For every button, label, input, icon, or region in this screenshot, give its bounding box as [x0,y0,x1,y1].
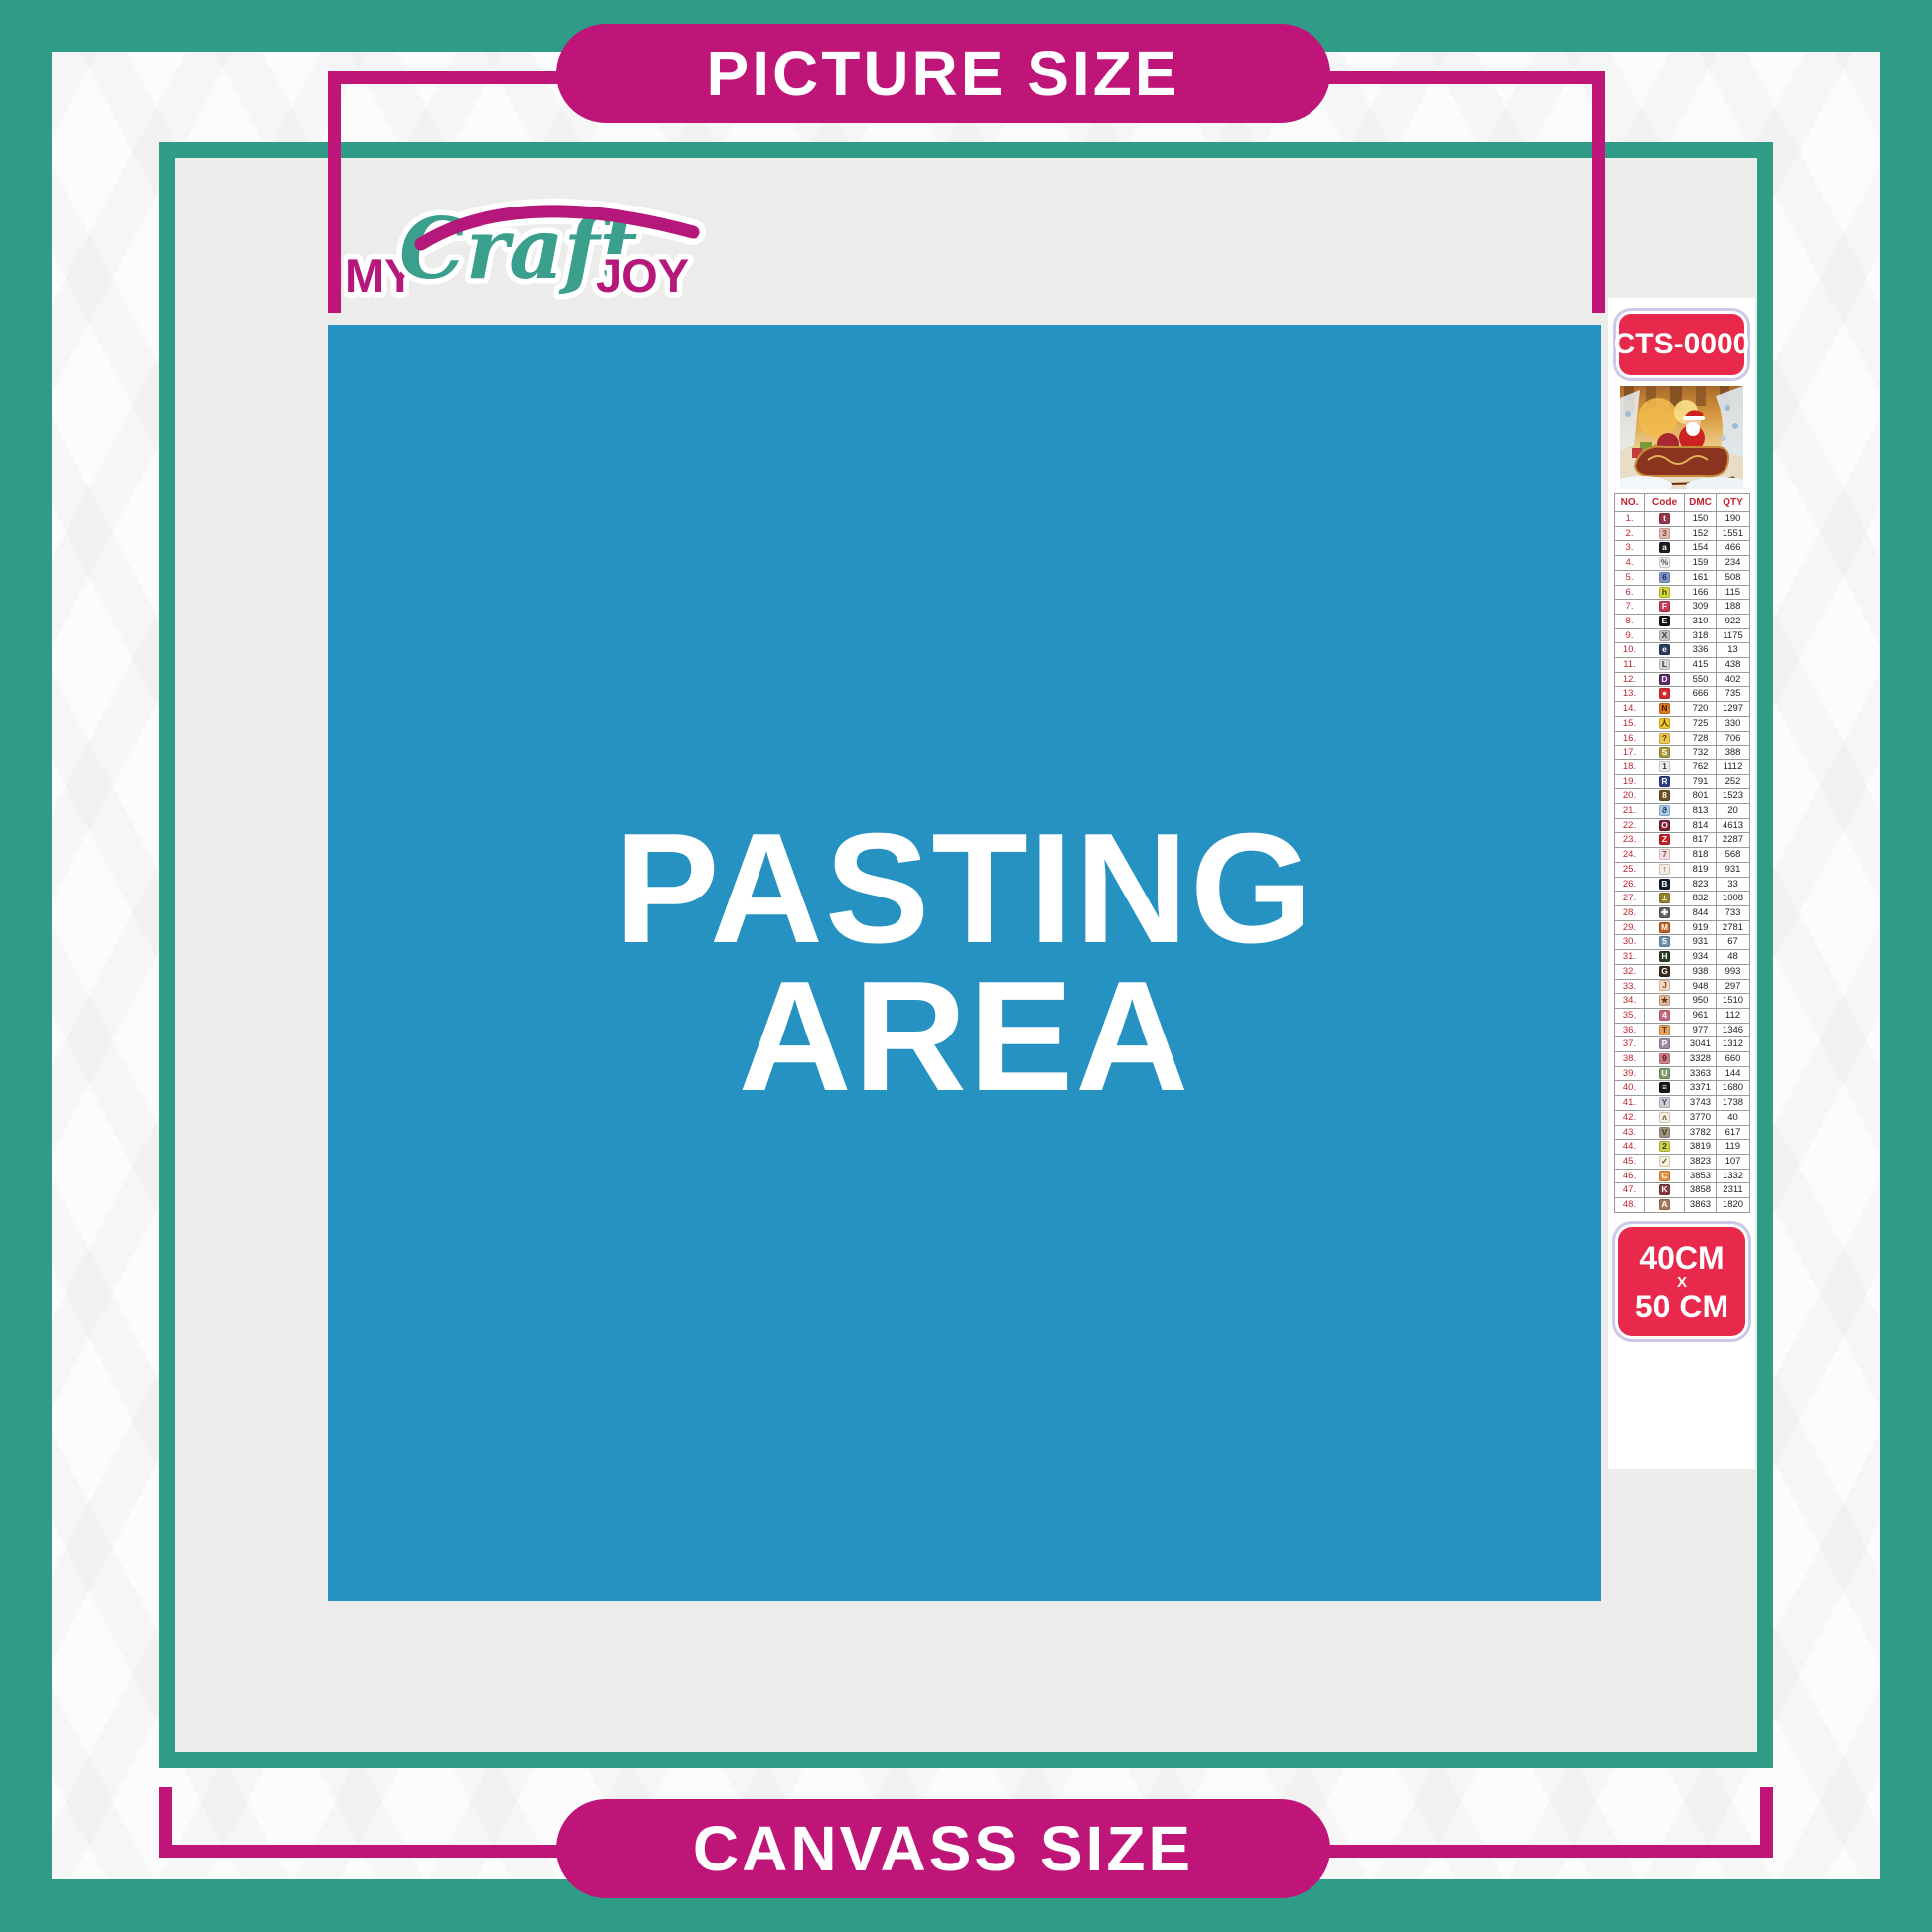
symbol-chip: Y [1659,1097,1670,1108]
code-cell: 8 [1645,789,1685,804]
symbol-chip: 1 [1659,761,1670,772]
dmc-value: 950 [1685,994,1717,1009]
symbol-chip: 2 [1659,1141,1670,1152]
dmc-value: 3743 [1685,1096,1717,1111]
dmc-value: 813 [1685,804,1717,819]
symbol-chip: T [1659,1025,1670,1035]
symbol-chip: ✓ [1659,1156,1670,1167]
dmc-value: 832 [1685,892,1717,906]
table-row: 10.e33613 [1615,643,1750,658]
dmc-value: 977 [1685,1023,1717,1037]
symbol-chip: 人 [1659,718,1670,729]
table-row: 44.23819119 [1615,1140,1750,1155]
dmc-value: 415 [1685,658,1717,673]
code-cell: ✤ [1645,905,1685,920]
row-number: 10. [1615,643,1645,658]
table-row: 4.%159234 [1615,556,1750,571]
qty-value: 1510 [1717,994,1750,1009]
table-row: 41.Y37431738 [1615,1096,1750,1111]
code-cell: 4 [1645,1008,1685,1023]
code-cell: ● [1645,687,1685,702]
product-size-graphic: PICTURE SIZE CANVASS SIZE MY Craft JOY P… [0,0,1932,1932]
dmc-value: 801 [1685,789,1717,804]
qty-value: 4613 [1717,818,1750,833]
row-number: 16. [1615,731,1645,746]
qty-value: 40 [1717,1110,1750,1125]
code-cell: H [1645,950,1685,965]
symbol-chip: X [1659,630,1670,641]
dmc-value: 817 [1685,833,1717,848]
qty-value: 1008 [1717,892,1750,906]
dmc-value: 814 [1685,818,1717,833]
symbol-chip: ± [1659,893,1670,903]
code-cell: 7 [1645,848,1685,863]
qty-value: 2287 [1717,833,1750,848]
table-row: 26.B82333 [1615,877,1750,892]
code-cell: ϑ [1645,804,1685,819]
code-cell: % [1645,556,1685,571]
header-no: NO. [1615,494,1645,512]
row-number: 37. [1615,1037,1645,1052]
row-number: 36. [1615,1023,1645,1037]
symbol-chip: 7 [1659,849,1670,860]
dmc-value: 948 [1685,979,1717,994]
row-number: 27. [1615,892,1645,906]
row-number: 25. [1615,862,1645,877]
table-row: 15.人725330 [1615,716,1750,731]
table-row: 20.88011523 [1615,789,1750,804]
sku-label: CTS-0000 [1614,328,1750,361]
row-number: 43. [1615,1125,1645,1140]
qty-value: 119 [1717,1140,1750,1155]
table-row: 14.N7201297 [1615,702,1750,717]
table-row: 6.h166115 [1615,585,1750,600]
symbol-chip: t [1659,513,1670,524]
dmc-value: 725 [1685,716,1717,731]
table-row: 13.●666735 [1615,687,1750,702]
table-row: 39.U3363144 [1615,1066,1750,1081]
code-cell: Y [1645,1096,1685,1111]
qty-value: 188 [1717,600,1750,615]
size-width: 40CM [1639,1242,1724,1274]
pasting-area-line2: AREA [739,963,1191,1111]
code-cell: ✓ [1645,1154,1685,1169]
code-cell: h [1645,585,1685,600]
picture-size-bracket-left [328,71,341,313]
qty-value: 252 [1717,774,1750,789]
row-number: 45. [1615,1154,1645,1169]
header-dmc: DMC [1685,494,1717,512]
qty-value: 297 [1717,979,1750,994]
symbol-chip: % [1659,557,1670,568]
code-cell: 6 [1645,570,1685,585]
code-cell: N [1645,702,1685,717]
row-number: 28. [1615,905,1645,920]
code-cell: 9 [1645,1052,1685,1067]
code-cell: ? [1645,731,1685,746]
table-row: 48.A38631820 [1615,1198,1750,1213]
pasting-area-line1: PASTING [615,815,1314,963]
table-row: 38.93328660 [1615,1052,1750,1067]
row-number: 23. [1615,833,1645,848]
table-row: 35.4961112 [1615,1008,1750,1023]
dmc-value: 3363 [1685,1066,1717,1081]
row-number: 2. [1615,526,1645,541]
code-cell: a [1645,541,1685,556]
pasting-area: PASTING AREA [328,325,1601,1601]
row-number: 6. [1615,585,1645,600]
dmc-value: 550 [1685,672,1717,687]
table-row: 32.G938993 [1615,964,1750,979]
dmc-value: 336 [1685,643,1717,658]
symbol-chip: 6 [1659,572,1670,583]
symbol-chip: S [1659,747,1670,758]
row-number: 19. [1615,774,1645,789]
dmc-value: 818 [1685,848,1717,863]
code-cell: B [1645,877,1685,892]
row-number: 9. [1615,628,1645,643]
symbol-chip: V [1659,1127,1670,1138]
symbol-chip: C [1659,1171,1670,1181]
qty-value: 13 [1717,643,1750,658]
qty-value: 112 [1717,1008,1750,1023]
qty-value: 107 [1717,1154,1750,1169]
picture-size-bracket-right [1592,71,1605,313]
table-row: 29.M9192781 [1615,920,1750,935]
symbol-chip: ≡ [1659,1082,1670,1093]
symbol-chip: L [1659,659,1670,670]
qty-value: 1332 [1717,1169,1750,1183]
qty-value: 234 [1717,556,1750,571]
dmc-value: 309 [1685,600,1717,615]
header-qty: QTY [1717,494,1750,512]
dmc-value: 762 [1685,759,1717,774]
row-number: 44. [1615,1140,1645,1155]
qty-value: 1175 [1717,628,1750,643]
dmc-value: 823 [1685,877,1717,892]
picture-size-label: PICTURE SIZE [707,37,1180,110]
row-number: 31. [1615,950,1645,965]
symbol-chip: N [1659,703,1670,714]
qty-value: 922 [1717,614,1750,628]
symbol-chip: B [1659,879,1670,890]
symbol-chip: O [1659,820,1670,831]
symbol-chip: 4 [1659,1010,1670,1021]
qty-value: 993 [1717,964,1750,979]
qty-value: 1523 [1717,789,1750,804]
symbol-chip: e [1659,644,1670,655]
symbol-chip: ϑ [1659,805,1670,816]
row-number: 21. [1615,804,1645,819]
qty-value: 33 [1717,877,1750,892]
row-number: 4. [1615,556,1645,571]
dmc-value: 3823 [1685,1154,1717,1169]
dmc-value: 154 [1685,541,1717,556]
row-number: 15. [1615,716,1645,731]
symbol-chip: a [1659,542,1670,553]
table-row: 21.ϑ81320 [1615,804,1750,819]
row-number: 11. [1615,658,1645,673]
dmc-color-table: NO. Code DMC QTY 1.t1501902.315215513.a1… [1614,493,1750,1213]
table-row: 28.✤844733 [1615,905,1750,920]
table-row: 11.L415438 [1615,658,1750,673]
size-badge: 40CM X 50 CM [1618,1227,1745,1336]
row-number: 12. [1615,672,1645,687]
code-cell: G [1645,964,1685,979]
dmc-value: 728 [1685,731,1717,746]
row-number: 24. [1615,848,1645,863]
row-number: 26. [1615,877,1645,892]
dmc-value: 961 [1685,1008,1717,1023]
row-number: 38. [1615,1052,1645,1067]
table-row: 46.C38531332 [1615,1169,1750,1183]
symbol-chip: D [1659,674,1670,685]
dmc-value: 3371 [1685,1081,1717,1096]
table-row: 2.31521551 [1615,526,1750,541]
code-cell: 3 [1645,526,1685,541]
symbol-chip: 3 [1659,528,1670,539]
dmc-value: 720 [1685,702,1717,717]
dmc-value: 3041 [1685,1037,1717,1052]
color-legend-sidebar: CTS-0000 [1608,298,1755,1469]
size-height: 50 CM [1635,1291,1728,1322]
qty-value: 1346 [1717,1023,1750,1037]
table-row: 37.P30411312 [1615,1037,1750,1052]
qty-value: 388 [1717,746,1750,760]
table-row: 36.T9771346 [1615,1023,1750,1037]
row-number: 14. [1615,702,1645,717]
symbol-chip: M [1659,922,1670,933]
dmc-value: 3863 [1685,1198,1717,1213]
dmc-value: 166 [1685,585,1717,600]
table-row: 23.Z8172287 [1615,833,1750,848]
table-row: 1.t150190 [1615,512,1750,527]
dmc-value: 159 [1685,556,1717,571]
code-cell: O [1645,818,1685,833]
table-row: 40.≡33711680 [1615,1081,1750,1096]
dmc-value: 3770 [1685,1110,1717,1125]
mycraftjoy-logo: MY Craft JOY [342,177,709,308]
row-number: 3. [1615,541,1645,556]
qty-value: 144 [1717,1066,1750,1081]
qty-value: 508 [1717,570,1750,585]
row-number: 33. [1615,979,1645,994]
symbol-chip: H [1659,951,1670,962]
row-number: 20. [1615,789,1645,804]
symbol-chip: ★ [1659,995,1670,1006]
table-row: 34.★9501510 [1615,994,1750,1009]
table-row: 25.↑819931 [1615,862,1750,877]
dmc-value: 318 [1685,628,1717,643]
row-number: 39. [1615,1066,1645,1081]
row-number: 1. [1615,512,1645,527]
qty-value: 1551 [1717,526,1750,541]
qty-value: 190 [1717,512,1750,527]
qty-value: 706 [1717,731,1750,746]
outer-border-right [1880,0,1932,1932]
table-row: 3.a154466 [1615,541,1750,556]
code-cell: P [1645,1037,1685,1052]
code-cell: K [1645,1183,1685,1198]
row-number: 29. [1615,920,1645,935]
qty-value: 660 [1717,1052,1750,1067]
table-row: 43.V3782617 [1615,1125,1750,1140]
code-cell: U [1645,1066,1685,1081]
row-number: 48. [1615,1198,1645,1213]
code-cell: Z [1645,833,1685,848]
header-code: Code [1645,494,1685,512]
code-cell: F [1645,600,1685,615]
row-number: 40. [1615,1081,1645,1096]
code-cell: ʌ [1645,1110,1685,1125]
row-number: 42. [1615,1110,1645,1125]
qty-value: 115 [1717,585,1750,600]
dmc-value: 161 [1685,570,1717,585]
table-header-row: NO. Code DMC QTY [1615,494,1750,512]
dmc-value: 666 [1685,687,1717,702]
code-cell: 2 [1645,1140,1685,1155]
dmc-value: 791 [1685,774,1717,789]
qty-value: 733 [1717,905,1750,920]
qty-value: 2311 [1717,1183,1750,1198]
dmc-value: 819 [1685,862,1717,877]
row-number: 30. [1615,935,1645,950]
table-row: 31.H93448 [1615,950,1750,965]
code-cell: V [1645,1125,1685,1140]
code-cell: J [1645,979,1685,994]
row-number: 47. [1615,1183,1645,1198]
dmc-value: 310 [1685,614,1717,628]
row-number: 18. [1615,759,1645,774]
symbol-chip: h [1659,587,1670,598]
canvass-size-banner: CANVASS SIZE [556,1799,1330,1898]
symbol-chip: E [1659,616,1670,626]
code-cell: R [1645,774,1685,789]
qty-value: 466 [1717,541,1750,556]
qty-value: 735 [1717,687,1750,702]
qty-value: 931 [1717,862,1750,877]
code-cell: S [1645,746,1685,760]
symbol-chip: Z [1659,834,1670,845]
symbol-chip: 9 [1659,1053,1670,1064]
code-cell: 1 [1645,759,1685,774]
canvass-size-label: CANVASS SIZE [693,1812,1193,1885]
code-cell: L [1645,658,1685,673]
dmc-value: 3858 [1685,1183,1717,1198]
row-number: 8. [1615,614,1645,628]
picture-size-banner: PICTURE SIZE [556,24,1330,123]
row-number: 22. [1615,818,1645,833]
code-cell: t [1645,512,1685,527]
symbol-chip: 8 [1659,790,1670,801]
code-cell: ≡ [1645,1081,1685,1096]
row-number: 32. [1615,964,1645,979]
symbol-chip: ʌ [1659,1112,1670,1123]
table-row: 42.ʌ377040 [1615,1110,1750,1125]
dmc-value: 3853 [1685,1169,1717,1183]
table-row: 9.X3181175 [1615,628,1750,643]
table-row: 7.F309188 [1615,600,1750,615]
row-number: 13. [1615,687,1645,702]
code-cell: A [1645,1198,1685,1213]
logo-joy: JOY [596,249,689,302]
table-row: 33.J948297 [1615,979,1750,994]
qty-value: 617 [1717,1125,1750,1140]
row-number: 41. [1615,1096,1645,1111]
symbol-chip: ● [1659,688,1670,699]
row-number: 5. [1615,570,1645,585]
symbol-chip: ✤ [1659,907,1670,918]
qty-value: 20 [1717,804,1750,819]
table-row: 12.D550402 [1615,672,1750,687]
code-cell: M [1645,920,1685,935]
row-number: 17. [1615,746,1645,760]
table-row: 8.E310922 [1615,614,1750,628]
symbol-chip: ↑ [1659,864,1670,875]
symbol-chip: F [1659,601,1670,612]
table-row: 27.±8321008 [1615,892,1750,906]
code-cell: ± [1645,892,1685,906]
dmc-value: 3782 [1685,1125,1717,1140]
table-row: 16.?728706 [1615,731,1750,746]
code-cell: T [1645,1023,1685,1037]
dmc-value: 844 [1685,905,1717,920]
code-cell: ★ [1645,994,1685,1009]
qty-value: 1680 [1717,1081,1750,1096]
symbol-chip: 5 [1659,936,1670,947]
outer-border-left [0,0,52,1932]
code-cell: e [1645,643,1685,658]
qty-value: 330 [1717,716,1750,731]
canvass-size-bracket-left [159,1787,172,1858]
qty-value: 1112 [1717,759,1750,774]
dmc-value: 152 [1685,526,1717,541]
table-row: 22.O8144613 [1615,818,1750,833]
code-cell: E [1645,614,1685,628]
product-thumbnail-santa-sleigh [1620,386,1743,489]
canvass-size-bracket-right [1760,1787,1773,1858]
dmc-value: 938 [1685,964,1717,979]
code-cell: ↑ [1645,862,1685,877]
table-row: 24.7818568 [1615,848,1750,863]
dmc-value: 931 [1685,935,1717,950]
qty-value: 1820 [1717,1198,1750,1213]
code-cell: D [1645,672,1685,687]
symbol-chip: U [1659,1068,1670,1079]
dmc-value: 3819 [1685,1140,1717,1155]
table-row: 5.6161508 [1615,570,1750,585]
symbol-chip: ? [1659,733,1670,744]
symbol-chip: G [1659,966,1670,977]
dmc-value: 150 [1685,512,1717,527]
row-number: 35. [1615,1008,1645,1023]
qty-value: 1297 [1717,702,1750,717]
table-row: 17.S732388 [1615,746,1750,760]
symbol-chip: K [1659,1184,1670,1195]
code-cell: 人 [1645,716,1685,731]
row-number: 34. [1615,994,1645,1009]
qty-value: 568 [1717,848,1750,863]
color-table-body: 1.t1501902.315215513.a1544664.%1592345.6… [1615,512,1750,1213]
dmc-value: 3328 [1685,1052,1717,1067]
symbol-chip: R [1659,776,1670,787]
size-x: X [1677,1275,1687,1290]
symbol-chip: A [1659,1199,1670,1210]
sku-badge: CTS-0000 [1619,314,1744,375]
qty-value: 1738 [1717,1096,1750,1111]
row-number: 7. [1615,600,1645,615]
table-row: 47.K38582311 [1615,1183,1750,1198]
